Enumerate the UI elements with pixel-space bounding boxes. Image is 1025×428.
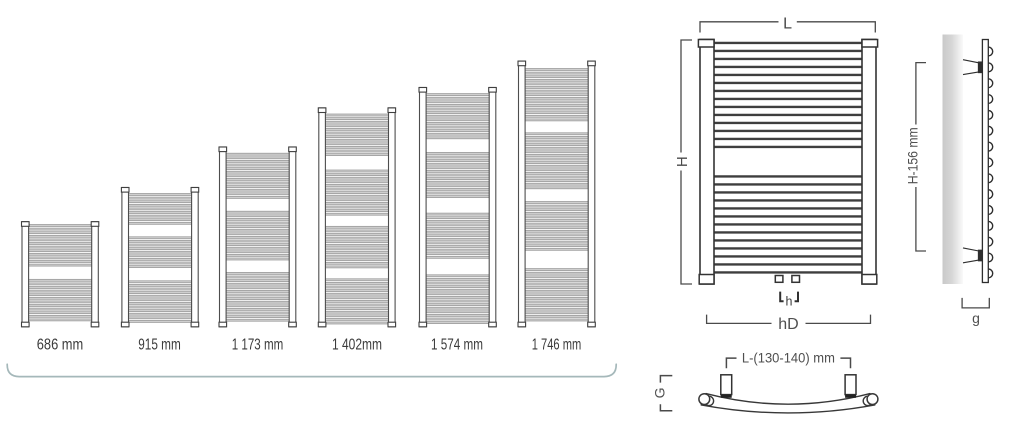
svg-text:hD: hD (778, 316, 798, 333)
svg-text:686 mm: 686 mm (37, 337, 84, 354)
svg-text:915 mm: 915 mm (138, 337, 181, 354)
svg-text:H-156 mm: H-156 mm (906, 127, 921, 184)
svg-text:1 402mm: 1 402mm (332, 337, 382, 354)
svg-text:L: L (783, 16, 792, 33)
svg-text:L-(130-140) mm: L-(130-140) mm (742, 351, 835, 366)
svg-text:1 746 mm: 1 746 mm (532, 337, 582, 354)
svg-text:H: H (674, 156, 691, 167)
svg-text:h: h (786, 294, 793, 308)
svg-text:G: G (651, 387, 667, 398)
svg-text:1 173 mm: 1 173 mm (232, 337, 284, 354)
svg-text:g: g (972, 310, 980, 326)
svg-text:1 574 mm: 1 574 mm (431, 337, 483, 354)
